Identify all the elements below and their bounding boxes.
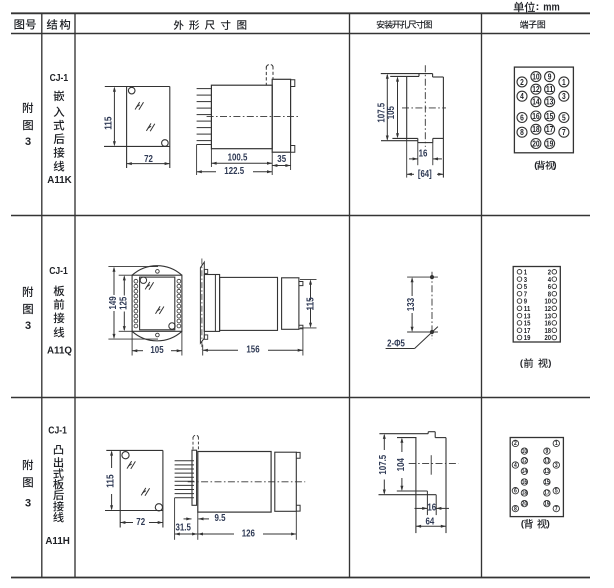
svg-text:19: 19 (524, 333, 531, 342)
svg-text:4: 4 (520, 92, 524, 101)
svg-text:13: 13 (546, 98, 554, 107)
svg-text:16: 16 (427, 502, 436, 513)
svg-text:156: 156 (246, 345, 260, 356)
svg-text:20: 20 (545, 333, 552, 342)
svg-text:10: 10 (522, 448, 528, 455)
svg-text:3: 3 (25, 136, 31, 148)
svg-text:15: 15 (544, 479, 550, 486)
svg-text:15: 15 (546, 112, 554, 121)
svg-text:104: 104 (396, 458, 407, 472)
svg-text:2-Φ5: 2-Φ5 (387, 339, 405, 350)
svg-text:3: 3 (25, 320, 31, 332)
svg-text:17: 17 (546, 125, 554, 134)
svg-text:18: 18 (532, 125, 540, 134)
svg-text:5: 5 (555, 488, 558, 495)
svg-text::: : (536, 1, 540, 13)
svg-text:17: 17 (544, 490, 550, 497)
svg-text:107.5: 107.5 (378, 454, 389, 474)
svg-text:): ) (547, 519, 550, 530)
svg-text:149: 149 (108, 296, 119, 310)
svg-text:126: 126 (242, 528, 256, 539)
svg-text:9: 9 (546, 448, 549, 455)
svg-text:3: 3 (555, 462, 558, 469)
svg-text:): ) (548, 358, 551, 369)
svg-text:105: 105 (386, 106, 397, 120)
svg-text:115: 115 (105, 474, 116, 488)
svg-text:100.5: 100.5 (228, 152, 248, 163)
svg-text:72: 72 (136, 517, 145, 528)
svg-text:11: 11 (544, 458, 550, 465)
svg-text:8: 8 (514, 505, 517, 512)
svg-text:11: 11 (546, 85, 554, 94)
svg-text:20: 20 (532, 139, 540, 148)
svg-text:3: 3 (562, 92, 566, 101)
svg-text:72: 72 (144, 154, 153, 165)
svg-text:64: 64 (426, 517, 435, 528)
svg-text:7: 7 (562, 128, 566, 137)
svg-text:3: 3 (25, 497, 31, 509)
svg-text:8: 8 (520, 128, 524, 137)
svg-text:20: 20 (522, 500, 528, 507)
svg-text:125: 125 (119, 296, 130, 310)
svg-text:[64]: [64] (418, 169, 432, 180)
svg-text:5: 5 (562, 113, 566, 122)
svg-text:2: 2 (520, 78, 524, 87)
svg-text:A11K: A11K (47, 175, 72, 186)
svg-text:CJ-1: CJ-1 (50, 72, 69, 84)
svg-text:19: 19 (544, 500, 550, 507)
svg-text:1: 1 (555, 440, 558, 447)
svg-text:14: 14 (532, 98, 540, 107)
svg-text:14: 14 (522, 468, 528, 475)
svg-text:19: 19 (546, 139, 554, 148)
svg-text:2: 2 (514, 440, 517, 447)
svg-text:12: 12 (532, 85, 540, 94)
svg-text:18: 18 (522, 490, 528, 497)
svg-text:mm: mm (543, 2, 560, 14)
svg-text:4: 4 (514, 462, 517, 469)
svg-text:): ) (553, 160, 556, 171)
svg-text:CJ-1: CJ-1 (48, 425, 67, 437)
svg-text:115: 115 (103, 116, 114, 130)
svg-text:6: 6 (520, 113, 524, 122)
svg-text:133: 133 (406, 297, 417, 311)
svg-text:A11Q: A11Q (47, 346, 72, 357)
svg-text:115: 115 (306, 297, 317, 311)
svg-text:12: 12 (522, 458, 528, 465)
svg-text:16: 16 (419, 149, 428, 160)
svg-text:31.5: 31.5 (176, 522, 192, 533)
svg-text:16: 16 (532, 112, 540, 121)
svg-text:7: 7 (555, 505, 558, 512)
svg-text:13: 13 (544, 468, 550, 475)
svg-text:16: 16 (522, 479, 528, 486)
svg-text:10: 10 (532, 73, 540, 82)
svg-text:1: 1 (562, 78, 566, 87)
svg-text:9: 9 (548, 73, 552, 82)
svg-text:CJ-1: CJ-1 (49, 265, 68, 277)
svg-text:9.5: 9.5 (215, 513, 226, 524)
svg-text:35: 35 (277, 154, 286, 165)
svg-text:105: 105 (150, 345, 164, 356)
svg-text:6: 6 (514, 488, 517, 495)
svg-text:122.5: 122.5 (224, 166, 244, 177)
svg-text:A11H: A11H (45, 536, 70, 547)
